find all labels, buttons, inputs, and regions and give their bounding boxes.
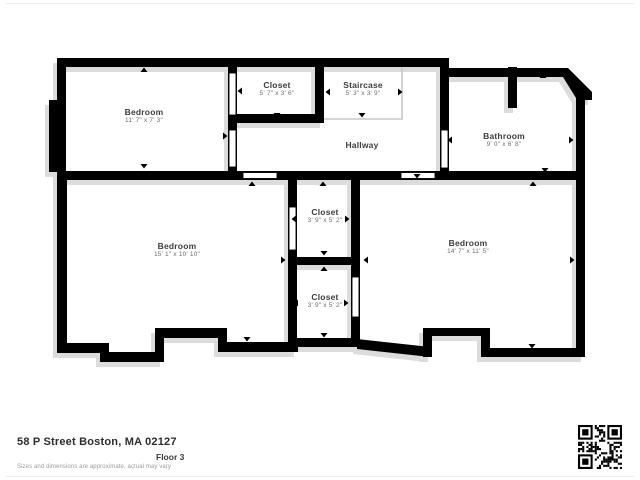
qr-code — [578, 425, 622, 469]
staircase-outline — [324, 67, 402, 119]
walls — [49, 58, 592, 362]
address-title: 58 P Street Boston, MA 02127 — [17, 436, 177, 448]
floor-plan — [0, 0, 640, 480]
disclaimer-text: Sizes and dimensions are approximate, ac… — [17, 464, 171, 470]
floor-label: Floor 3 — [156, 452, 184, 462]
